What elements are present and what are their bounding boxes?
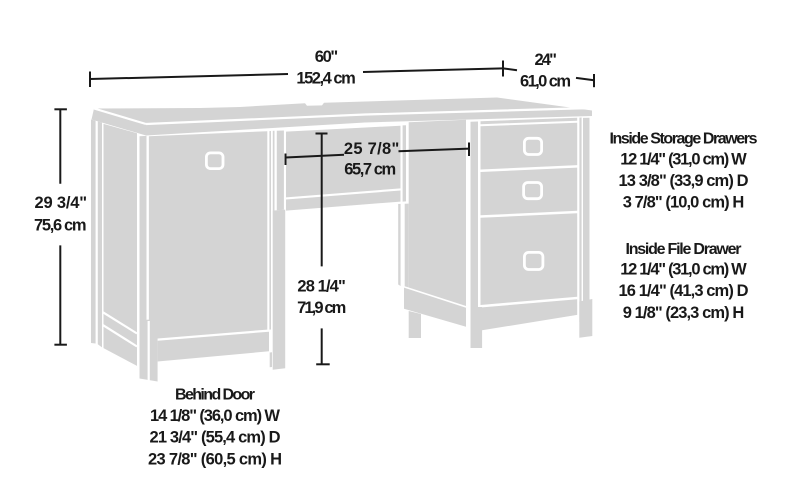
svg-text:12 1/4" (31,0 cm) W: 12 1/4" (31,0 cm) W xyxy=(620,151,747,169)
svg-text:Inside Storage Drawers: Inside Storage Drawers xyxy=(610,131,758,148)
svg-text:152,4 cm: 152,4 cm xyxy=(296,70,355,88)
svg-text:24": 24" xyxy=(534,51,557,69)
svg-text:3 7/8" (10,0 cm) H: 3 7/8" (10,0 cm) H xyxy=(623,194,745,212)
svg-text:60": 60" xyxy=(315,48,338,66)
svg-text:16 1/4" (41,3 cm) D: 16 1/4" (41,3 cm) D xyxy=(619,282,749,300)
svg-text:9 1/8" (23,3 cm) H: 9 1/8" (23,3 cm) H xyxy=(623,304,745,322)
svg-text:75,6 cm: 75,6 cm xyxy=(34,217,87,235)
svg-text:Behind Door: Behind Door xyxy=(175,387,255,404)
svg-text:12 1/4" (31,0 cm) W: 12 1/4" (31,0 cm) W xyxy=(620,261,747,279)
svg-text:14 1/8" (36,0 cm) W: 14 1/8" (36,0 cm) W xyxy=(150,407,280,425)
svg-text:13 3/8" (33,9 cm) D: 13 3/8" (33,9 cm) D xyxy=(619,172,749,190)
svg-text:65,7 cm: 65,7 cm xyxy=(344,161,396,179)
svg-text:23 7/8" (60,5 cm) H: 23 7/8" (60,5 cm) H xyxy=(148,450,282,468)
svg-text:71,9 cm: 71,9 cm xyxy=(297,299,346,317)
svg-text:Inside File Drawer: Inside File Drawer xyxy=(626,241,742,258)
svg-text:29 3/4": 29 3/4" xyxy=(35,194,88,212)
svg-text:21 3/4" (55,4 cm) D: 21 3/4" (55,4 cm) D xyxy=(150,429,281,447)
svg-text:28 1/4": 28 1/4" xyxy=(297,277,345,295)
svg-text:25 7/8": 25 7/8" xyxy=(344,140,400,158)
svg-text:61,0 cm: 61,0 cm xyxy=(520,72,571,90)
